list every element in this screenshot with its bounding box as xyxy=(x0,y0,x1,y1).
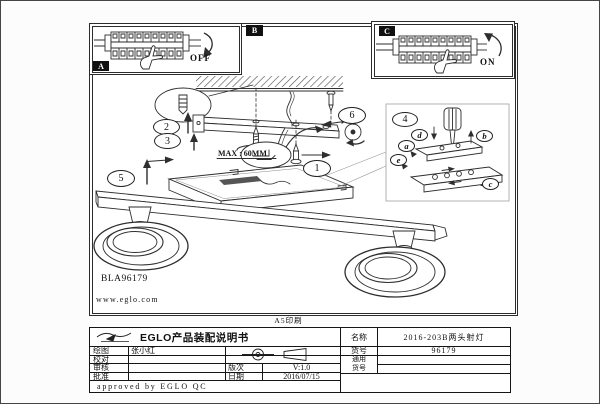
part-c-label: c xyxy=(482,178,499,190)
drawing-code: BLA96179 xyxy=(101,274,148,284)
drawn-label: 绘图 xyxy=(93,346,128,355)
eglo-logo-icon xyxy=(93,330,137,344)
print-size-note: A5印刷 xyxy=(231,315,346,326)
rotate-on-arrow xyxy=(491,35,501,56)
step-1-marker: 1 xyxy=(303,160,331,177)
product-name: 2016-203B两头射灯 xyxy=(378,328,510,346)
part-e-label: e xyxy=(390,154,407,166)
approve-label: 批准 xyxy=(93,372,128,380)
part-a-label: a xyxy=(398,140,415,152)
screw-left xyxy=(237,88,272,150)
universal-label-line2: 货号 xyxy=(341,364,377,373)
leader-line xyxy=(325,152,386,176)
step-4-marker: 4 xyxy=(392,112,418,127)
max-depth-note: MAX : 60MM xyxy=(218,149,267,158)
website-text: www.eglo.com xyxy=(96,295,159,304)
table-line xyxy=(377,364,510,365)
main-panel-tag: B xyxy=(246,25,263,36)
version-label: 版次 xyxy=(228,363,261,372)
terminal-block-off-drawing xyxy=(91,25,240,73)
universal-label-line1: 通用 xyxy=(341,355,377,364)
step-6-marker: 6 xyxy=(338,107,366,124)
table-line xyxy=(340,373,510,374)
item-number: 96179 xyxy=(378,346,510,355)
inset-panel-on: ON C xyxy=(371,21,515,79)
version-value: V:1.0 xyxy=(263,363,340,372)
universal-item-label: 通用 货号 xyxy=(341,355,377,373)
inset-panel-off: OFF A xyxy=(89,23,242,75)
ceiling-hatch xyxy=(196,76,343,91)
review-label: 审核 xyxy=(93,363,128,372)
leader-line xyxy=(336,166,386,188)
switch-on-label: ON xyxy=(480,57,496,67)
date-label: 日期 xyxy=(228,372,261,380)
inset-c-tag: C xyxy=(379,26,395,36)
title-block-title: EGLO产品装配说明书 xyxy=(140,328,338,346)
title-block: EGLO产品装配说明书 名称 2016-203B两头射灯 绘图 张小红 校对 审… xyxy=(89,327,511,393)
inset-a-tag: A xyxy=(93,61,109,71)
step-3-marker: 3 xyxy=(154,133,181,149)
check-label: 校对 xyxy=(93,355,128,363)
step-5-marker: 5 xyxy=(107,170,135,187)
switch-off-label: OFF xyxy=(190,53,211,63)
assembly-instruction-sheet: MAX : 60MM BLA96179 www.eglo.com 1 2 3 4… xyxy=(0,0,600,404)
qc-approval-note: approved by EGLO QC xyxy=(97,380,337,392)
name-label: 名称 xyxy=(341,328,377,346)
date-value: 2016/07/15 xyxy=(263,372,340,380)
spotlight-left xyxy=(94,207,188,270)
part-d-label: d xyxy=(411,129,428,141)
projection-symbol xyxy=(240,347,330,362)
item-label: 货号 xyxy=(341,346,377,355)
drawn-by: 张小红 xyxy=(131,346,221,355)
part-b-label: b xyxy=(476,130,493,142)
